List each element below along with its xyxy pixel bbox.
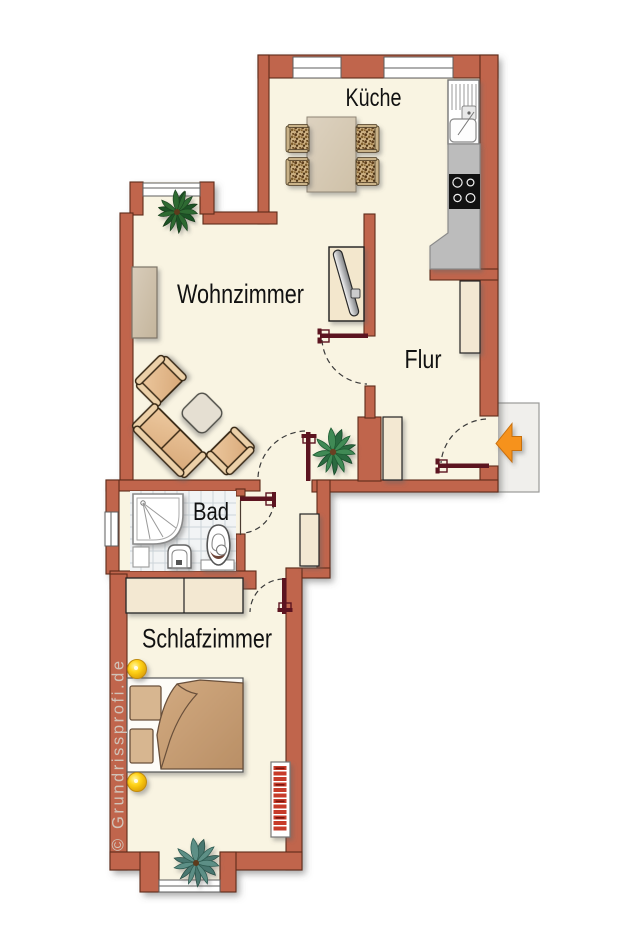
svg-text:Bad: Bad (193, 498, 229, 526)
svg-text:Schlafzimmer: Schlafzimmer (142, 624, 272, 654)
svg-text:Küche: Küche (346, 84, 402, 112)
svg-text:Wohnzimmer: Wohnzimmer (177, 279, 304, 309)
svg-text:© Grundrissprofi.de: © Grundrissprofi.de (110, 658, 128, 851)
svg-text:Flur: Flur (405, 344, 442, 374)
